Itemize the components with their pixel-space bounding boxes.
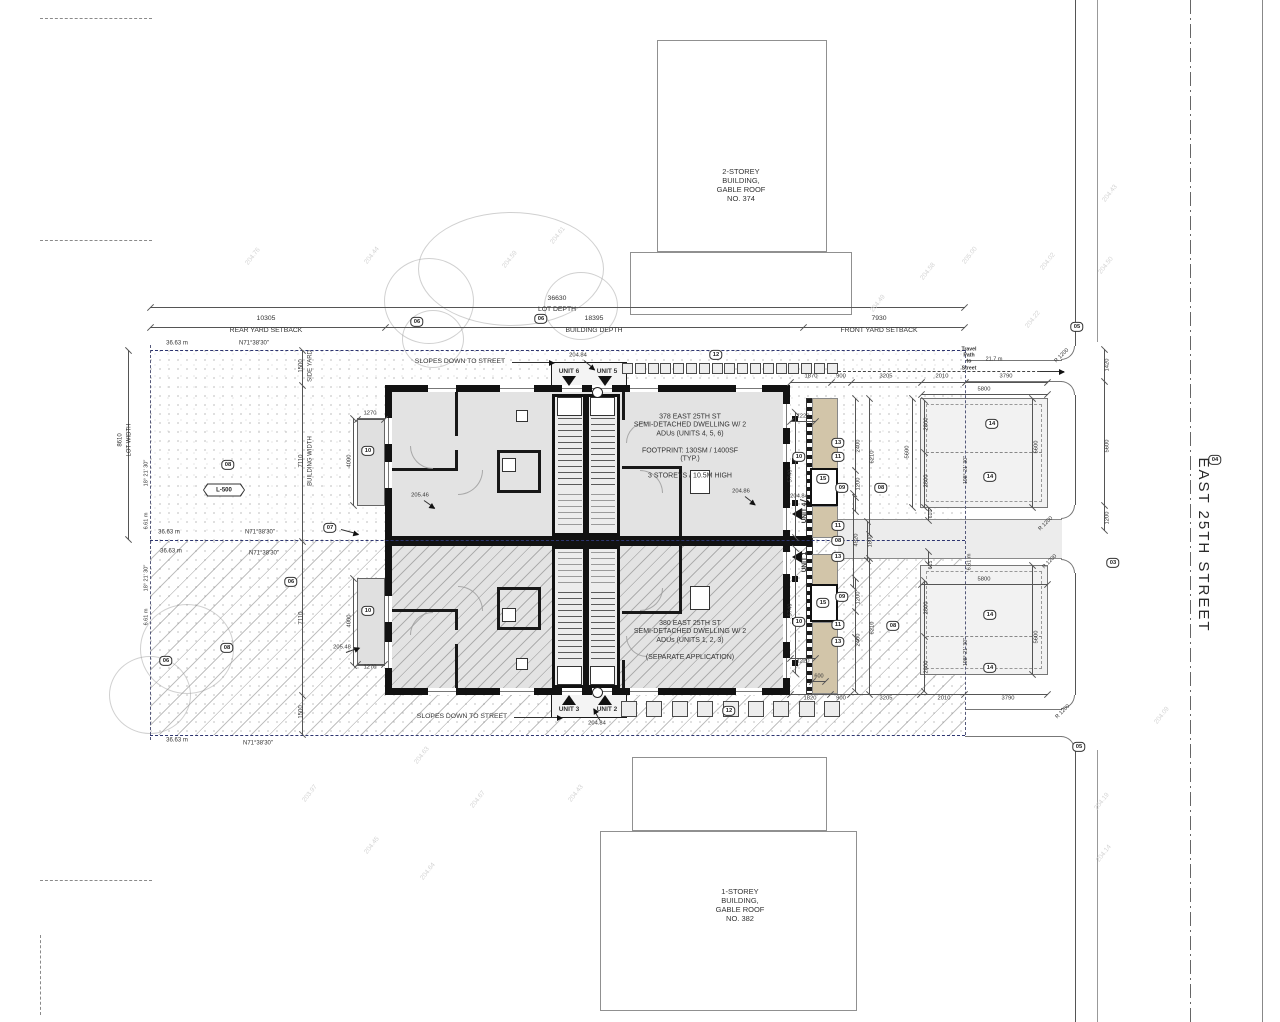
apron-edge (965, 736, 1062, 737)
keynote-13: 13 (831, 637, 844, 647)
keynote-09: 09 (835, 592, 848, 602)
plan-label: N71°38'30" (249, 550, 279, 557)
lot-line-front (965, 350, 966, 735)
curb-radius (1061, 505, 1075, 519)
plan-label: 5740 (788, 604, 795, 617)
travel-path-distance: 21.7 m (986, 357, 1003, 364)
adjacent-property-line (40, 880, 152, 881)
keynote-03: 03 (1106, 558, 1119, 568)
plan-label: UNIT 6 (559, 368, 580, 376)
window (783, 444, 790, 462)
stair-treads-dashed (558, 552, 582, 588)
partition (622, 660, 625, 688)
street-name: EAST 25TH STREET (1194, 457, 1212, 632)
building-380-label: 380 EAST 25TH ST SEMI-DETACHED DWELLING … (634, 620, 746, 662)
survey-elevation: 204.43 (1101, 184, 1119, 204)
curb-line (1075, 750, 1076, 1022)
curb-line (1075, 573, 1076, 695)
plan-label: N71°38'30" (239, 340, 269, 347)
keynote-12: 12 (722, 706, 735, 716)
entry-arrow-unit6 (562, 376, 576, 386)
plan-label: 1270 (364, 665, 377, 672)
lot-line-north (150, 350, 965, 351)
dim-line (812, 681, 826, 682)
survey-elevation: 204.45 (363, 836, 381, 856)
plan-label: 1420 (1105, 359, 1112, 372)
plan-label: 2800 (924, 661, 931, 674)
keynote-15: 15 (816, 598, 829, 608)
partition (497, 627, 541, 630)
paver (750, 363, 761, 374)
survey-elevation: 204.76 (244, 247, 262, 267)
plan-label: 1200 (856, 478, 863, 491)
paver (776, 363, 787, 374)
travel-path-label: Travel Path to Street (962, 347, 977, 372)
north-neighbor-step (630, 252, 852, 315)
survey-elevation: 204.19 (1093, 792, 1111, 812)
plan-label: 1220 (797, 659, 810, 666)
plan-label: 6.61 m (144, 513, 151, 530)
survey-elevation: 204.22 (1024, 310, 1042, 330)
paver (622, 363, 633, 374)
plan-label: 1220 (797, 414, 810, 421)
window (736, 688, 762, 695)
plan-label: 1800 (868, 535, 875, 548)
survey-elevation: 204.50 (1097, 256, 1115, 276)
parking-pad-south-inner (926, 571, 1042, 669)
dim-line (795, 548, 796, 674)
partition (497, 453, 500, 493)
plan-label: 3205 (880, 374, 893, 381)
plan-label: 36.63 m (160, 548, 182, 555)
plan-label: 36.63 m (158, 529, 180, 536)
keynote-06: 06 (410, 317, 423, 327)
street-centerline (1190, 0, 1191, 1022)
window (736, 385, 762, 392)
plan-label: 1500 (298, 359, 305, 372)
plan-label: UNIT 1 (801, 552, 809, 573)
plan-label: 5600 (1105, 440, 1112, 453)
paver (814, 363, 825, 374)
paver (635, 363, 646, 374)
dim-line (357, 419, 385, 420)
keynote-14: 14 (983, 610, 996, 620)
keynote-hex-label: L-500 (204, 485, 244, 496)
plan-label: 600 (814, 674, 823, 681)
plan-label: 900 (836, 696, 846, 703)
plan-label: 2010 (936, 374, 949, 381)
lot-line-south (150, 735, 965, 736)
paver (824, 701, 840, 717)
paver (788, 363, 799, 374)
stair-treads-dashed (591, 494, 615, 530)
keynote-10: 10 (361, 446, 374, 456)
plan-label: 6210 (870, 622, 877, 635)
plan-label: 3790 (1002, 696, 1015, 703)
leader-arrow (512, 362, 554, 363)
porch-column (592, 387, 603, 398)
partition (497, 587, 541, 590)
adjacent-property-line (40, 18, 152, 19)
bath-fixture (502, 608, 516, 622)
keynote-14: 14 (983, 663, 996, 673)
partition (455, 392, 458, 436)
adjacent-property-line (40, 240, 152, 241)
paver (737, 363, 748, 374)
plan-label: 2400 (856, 440, 863, 453)
door-gap (562, 688, 582, 695)
plan-label: 7930 (871, 315, 886, 323)
plan-label: 4520 (854, 534, 861, 547)
window (385, 462, 392, 488)
stoop-west-south (357, 578, 385, 666)
keynote-08: 08 (831, 536, 844, 546)
adjacent-property-line (40, 935, 41, 1015)
keynote-08: 08 (221, 460, 234, 470)
paver (724, 363, 735, 374)
plan-label: 36.63 m (166, 737, 188, 744)
lot-line-west (150, 345, 151, 740)
keynote-hex: L-500 (203, 484, 245, 497)
partition (497, 490, 541, 493)
window (630, 688, 658, 695)
plan-label: 5800 (978, 577, 991, 584)
keynote-14: 14 (983, 472, 996, 482)
stair-divider (583, 394, 589, 536)
plan-label: 5800 (978, 387, 991, 394)
bath-fixture (516, 410, 528, 422)
porch-column (592, 687, 603, 698)
curb-radius (1061, 381, 1075, 395)
apron-edge (965, 709, 1062, 710)
plan-label: N71°38'30" (245, 529, 275, 536)
plan-label: UNIT 3 (559, 706, 580, 714)
survey-elevation: 204.43 (567, 784, 585, 804)
paver (799, 701, 815, 717)
plan-label: 6210 (870, 451, 877, 464)
paver (660, 363, 671, 374)
bath-fixture (516, 658, 528, 670)
bath-fixture (690, 586, 710, 610)
plan-label: 3790 (1000, 374, 1013, 381)
paver (646, 701, 662, 717)
paver (801, 363, 812, 374)
plan-label: 204.86 (732, 489, 750, 496)
plan-label: 1270 (364, 411, 377, 418)
plan-label: 204.84 (569, 353, 587, 360)
partition (392, 609, 456, 612)
sidewalk-line (1097, 750, 1098, 1022)
stoop-west-north (357, 418, 385, 506)
window (630, 385, 658, 392)
plan-label: 2800 (924, 418, 931, 431)
plan-label: 7110 (298, 612, 305, 625)
plan-label: 36.63 m (166, 340, 188, 347)
keynote-06: 06 (284, 577, 297, 587)
paver (648, 363, 659, 374)
plan-label: 2800 (924, 475, 931, 488)
plan-label: 2010 (938, 696, 951, 703)
plan-label: SIDE YARD (307, 350, 314, 382)
plan-label: BUILDING WIDTH (307, 436, 314, 486)
dim-line (795, 412, 796, 538)
stair-landing (590, 397, 615, 416)
paver (763, 363, 774, 374)
keynote-10: 10 (792, 452, 805, 462)
partition (497, 587, 500, 627)
door-gap (783, 508, 790, 530)
building-378-label: 378 EAST 25TH ST SEMI-DETACHED DWELLING … (634, 413, 746, 480)
window (783, 618, 790, 642)
dim-line (869, 398, 870, 535)
window (500, 688, 534, 695)
partition (538, 587, 541, 627)
keynote-11: 11 (831, 452, 844, 462)
partition (622, 392, 625, 420)
plan-label: 198° 21' 30" (963, 456, 969, 484)
keynote-10: 10 (361, 606, 374, 616)
window (500, 385, 534, 392)
stair-divider (583, 546, 589, 688)
plan-label: LOT WIDTH (126, 424, 133, 457)
keynote-14: 14 (985, 419, 998, 429)
paver (673, 363, 684, 374)
keynote-08: 08 (874, 483, 887, 493)
paver (697, 701, 713, 717)
plan-label: N71°38'30" (243, 740, 273, 747)
window (385, 596, 392, 622)
plan-label: 615 (928, 561, 934, 570)
travel-path-line (838, 371, 1060, 372)
stair-treads (591, 592, 615, 664)
apron-edge (965, 360, 1062, 361)
curb-radius (1061, 559, 1075, 573)
north-neighbor-label: 2-STOREY BUILDING, GABLE ROOF NO. 374 (717, 167, 766, 203)
survey-elevation: 204.58 (919, 262, 937, 282)
keynote-05: 05 (1070, 322, 1083, 332)
dim-line (1032, 565, 1033, 675)
partition (455, 609, 458, 630)
entry-arrow-unit5 (598, 376, 612, 386)
plan-label: 5600 (1034, 631, 1041, 644)
party-wall (385, 536, 812, 546)
leader-arrow (1040, 371, 1064, 372)
keynote-07: 07 (323, 523, 336, 533)
plan-label: 205.46 (411, 493, 429, 500)
site-plan: 204.76204.44204.59204.61204.49204.58204.… (0, 0, 1280, 1022)
keynote-11: 11 (831, 620, 844, 630)
plan-label: 1870 (805, 374, 818, 381)
paver (748, 701, 764, 717)
keynote-05: 05 (1072, 742, 1085, 752)
plan-label: UNIT 5 (597, 368, 618, 376)
paver (621, 701, 637, 717)
plan-label: 18° 21' 30" (144, 460, 151, 487)
survey-elevation: 205.00 (961, 246, 979, 266)
plan-label: 10305 (257, 315, 276, 323)
stair-landing (590, 666, 615, 685)
leader-arrow (514, 717, 562, 718)
keynote-09: 09 (835, 483, 848, 493)
survey-elevation: 204.09 (1153, 706, 1171, 726)
stair-treads (591, 418, 615, 490)
keynote-08: 08 (220, 643, 233, 653)
survey-elevation: 204.64 (419, 862, 437, 882)
survey-elevation: 204.49 (869, 294, 887, 314)
survey-elevation: 204.67 (469, 790, 487, 810)
keynote-10: 10 (792, 617, 805, 627)
parking-pad-south-divider (926, 636, 1042, 637)
parking-pad-north-divider (926, 452, 1042, 453)
plan-label: 3205 (880, 696, 893, 703)
plan-label: 610 (928, 510, 934, 519)
paver (712, 363, 723, 374)
plan-label: 1200 (1105, 512, 1112, 525)
partition (455, 450, 458, 471)
plan-label: UNIT 2 (597, 706, 618, 714)
south-neighbor-label: 1-STOREY BUILDING, GABLE ROOF NO. 382 (716, 887, 765, 923)
plan-label: R 1200 (1054, 703, 1071, 720)
keynote-12: 12 (709, 350, 722, 360)
window (385, 418, 392, 444)
survey-elevation: 204.02 (1039, 252, 1057, 272)
plan-label: SLOPES DOWN TO STREET (417, 713, 507, 721)
plan-label: 1200 (856, 592, 863, 605)
keynote-13: 13 (831, 552, 844, 562)
stair-landing (557, 397, 582, 416)
partition (622, 611, 682, 614)
keynote-06: 06 (159, 656, 172, 666)
survey-elevation: 203.97 (301, 784, 319, 804)
stair-treads-dashed (591, 552, 615, 588)
partition (455, 644, 458, 688)
paver (672, 701, 688, 717)
plan-label: 198° 21' 30" (963, 638, 969, 666)
sidewalk-line (1097, 0, 1098, 342)
curb-line (1075, 395, 1076, 505)
plan-label: 900 (836, 374, 846, 381)
window (428, 688, 456, 695)
parking-pad-north-inner (926, 404, 1042, 502)
entry-arrow-unit3 (562, 695, 576, 705)
window (385, 642, 392, 668)
partition (538, 453, 541, 493)
north-neighbor-building (657, 40, 827, 252)
plan-label: 6.61 m (967, 554, 974, 571)
plan-label: 5600 (1034, 441, 1041, 454)
plan-label: 18395 (585, 315, 604, 323)
paver (773, 701, 789, 717)
dim-line (790, 421, 816, 422)
plan-label: 5600 (905, 446, 912, 459)
bath-fixture (502, 458, 516, 472)
plan-label: 2800 (924, 602, 931, 615)
plan-label: BUILDING DEPTH (565, 327, 622, 335)
plan-label: 6.61 m (144, 609, 151, 626)
paver (686, 363, 697, 374)
survey-elevation: 204.63 (413, 746, 431, 766)
south-neighbor-step (632, 757, 827, 831)
plan-label: 4000 (347, 615, 354, 628)
plan-label: 36630 (548, 295, 567, 303)
partition (392, 468, 456, 471)
partition (497, 450, 541, 453)
street-far-edge (1262, 0, 1263, 1022)
plan-label: SLOPES DOWN TO STREET (415, 358, 505, 366)
plan-label: FRONT YARD SETBACK (840, 327, 917, 335)
keynote-15: 15 (816, 474, 829, 484)
paver (699, 363, 710, 374)
dim-line (912, 398, 913, 508)
keynote-11: 11 (831, 521, 844, 531)
plan-label: 1820 (804, 696, 817, 703)
stair-landing (557, 666, 582, 685)
plan-label: 8610 (117, 433, 124, 446)
plan-label: 4000 (347, 455, 354, 468)
plan-label: 1500 (298, 705, 305, 718)
plan-label: REAR YARD SETBACK (230, 327, 303, 335)
plan-label: 7110 (298, 455, 305, 468)
plan-label: 2400 (856, 634, 863, 647)
plan-label: 204.84 (588, 721, 606, 728)
stair-treads (558, 592, 582, 664)
stair-treads (558, 418, 582, 490)
curb-line (1075, 0, 1076, 346)
keynote-08: 08 (886, 621, 899, 631)
partition (679, 544, 682, 614)
plan-label: 5740 (788, 470, 795, 483)
window (428, 385, 456, 392)
door-gap (562, 385, 582, 392)
stair-treads-dashed (558, 494, 582, 530)
survey-elevation: 204.44 (363, 246, 381, 266)
dim-line (921, 584, 1048, 585)
keynote-06: 06 (534, 314, 547, 324)
door-gap (783, 552, 790, 574)
plan-label: 18° 21' 30" (144, 565, 151, 592)
keynote-13: 13 (831, 438, 844, 448)
paver (827, 363, 838, 374)
